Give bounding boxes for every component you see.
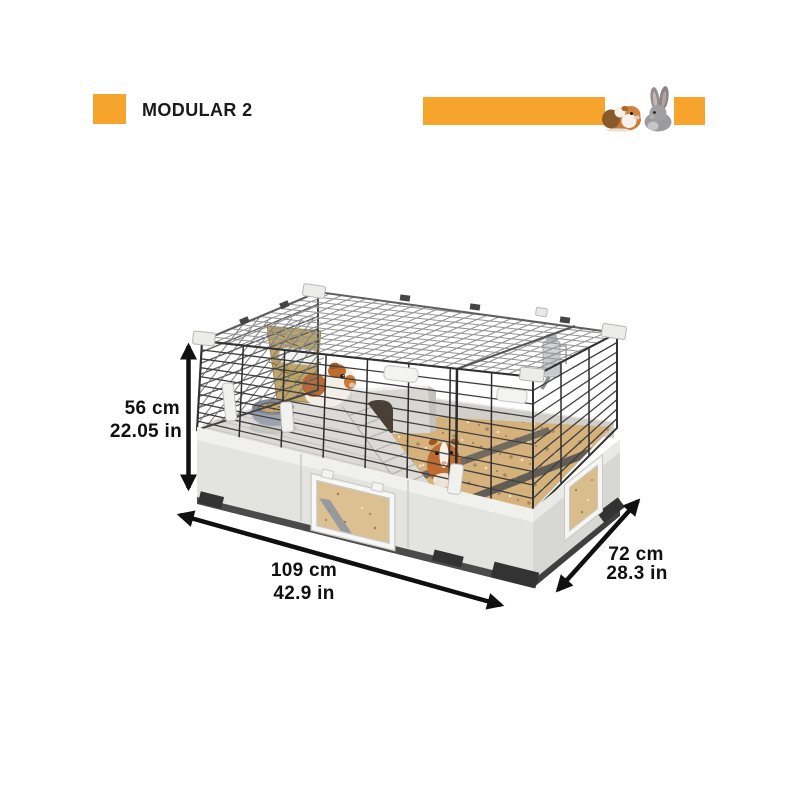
length-imperial-label: 42.9 in <box>273 583 334 604</box>
latch <box>280 402 294 433</box>
roof-clip <box>560 316 571 323</box>
latch <box>222 382 237 421</box>
height-imperial-label: 22.05 in <box>110 421 182 442</box>
roof-clip <box>470 303 481 310</box>
roof-clip <box>400 294 411 301</box>
corner-cap <box>192 331 215 346</box>
corner-cap <box>519 367 544 382</box>
height-dimension: 56 cm 22.05 in <box>110 346 189 488</box>
rail-trough <box>383 365 418 383</box>
cage-illustration: 56 cm 22.05 in 109 cm 42.9 in 72 cm 28.3… <box>0 0 800 800</box>
depth-metric-label: 72 cm <box>608 544 663 565</box>
depth-imperial-label: 28.3 in <box>606 563 667 584</box>
corner-cap <box>302 284 325 299</box>
roof-clip-white <box>535 307 547 316</box>
corner-cap <box>601 323 627 339</box>
height-metric-label: 56 cm <box>125 398 180 419</box>
length-metric-label: 109 cm <box>271 560 337 581</box>
